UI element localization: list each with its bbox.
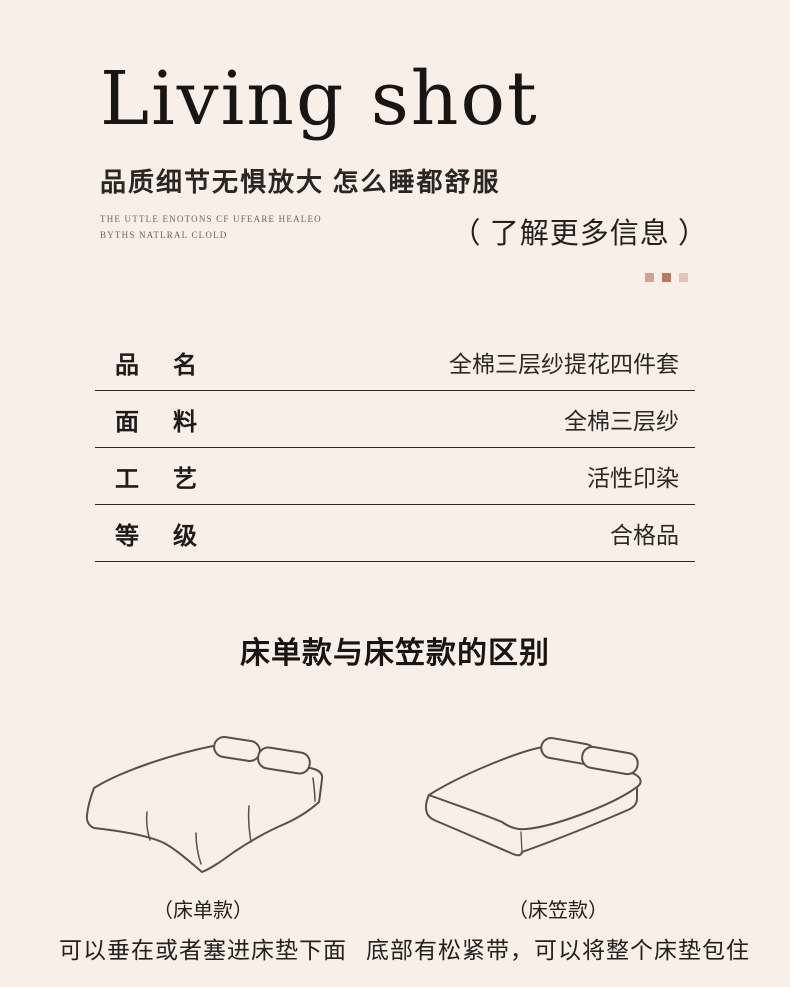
spec-value: 合格品 [610,516,679,550]
mattress-corner-crease [521,832,522,853]
figure-description: 可以垂在或者塞进床垫下面 [40,931,366,965]
fitted-sheet-bed-illustration [418,716,698,886]
spec-label: 等级 [115,516,231,551]
spec-row-grade: 等级 合格品 [95,505,695,562]
square-icon [645,273,654,282]
fitted-sheet-figure: （床笠款） 底部有松紧带，可以将整个床垫包住 [366,716,750,965]
spec-row-name: 品名 全棉三层纱提花四件套 [95,334,695,391]
comparison-title: 床单款与床笠款的区别 [0,628,790,672]
flat-sheet-bed-illustration [63,716,343,886]
spec-value: 全棉三层纱 [564,402,679,436]
square-icon [679,273,688,282]
figure-variant-label: （床笠款） [366,894,750,923]
spec-row-fabric: 面料 全棉三层纱 [95,391,695,448]
subtitle: 品质细节无惧放大 怎么睡都舒服 [100,162,539,199]
english-tagline-line1: THE UTTLE ENOTONS CF UFEARE HEALEO [100,214,322,224]
spec-label: 工艺 [115,459,231,494]
spec-label: 面料 [115,402,231,437]
spec-value: 全棉三层纱提花四件套 [449,345,679,379]
english-tagline-line2: BYTHS NATLRAL CLOLD [100,230,227,240]
spec-table: 品名 全棉三层纱提花四件套 面料 全棉三层纱 工艺 活性印染 等级 合格品 [95,334,695,562]
figure-description: 底部有松紧带，可以将整个床垫包住 [366,931,750,965]
figure-variant-label: （床单款） [40,894,366,923]
learn-more-link[interactable]: （ 了解更多信息 ） [451,210,708,282]
decorative-squares [451,273,708,282]
flat-sheet-figure: （床单款） 可以垂在或者塞进床垫下面 [40,716,366,965]
spec-row-craft: 工艺 活性印染 [95,448,695,505]
learn-more-label[interactable]: （ 了解更多信息 ） [451,210,708,252]
comparison-figures: （床单款） 可以垂在或者塞进床垫下面 （床笠款） 底部有松紧带，可以将整个床垫包… [40,716,750,965]
page-title: Living shot [100,62,539,136]
spec-label: 品名 [115,345,231,380]
spec-value: 活性印染 [587,459,679,493]
product-detail-page: Living shot 品质细节无惧放大 怎么睡都舒服 THE UTTLE EN… [0,0,790,987]
square-icon [662,273,671,282]
